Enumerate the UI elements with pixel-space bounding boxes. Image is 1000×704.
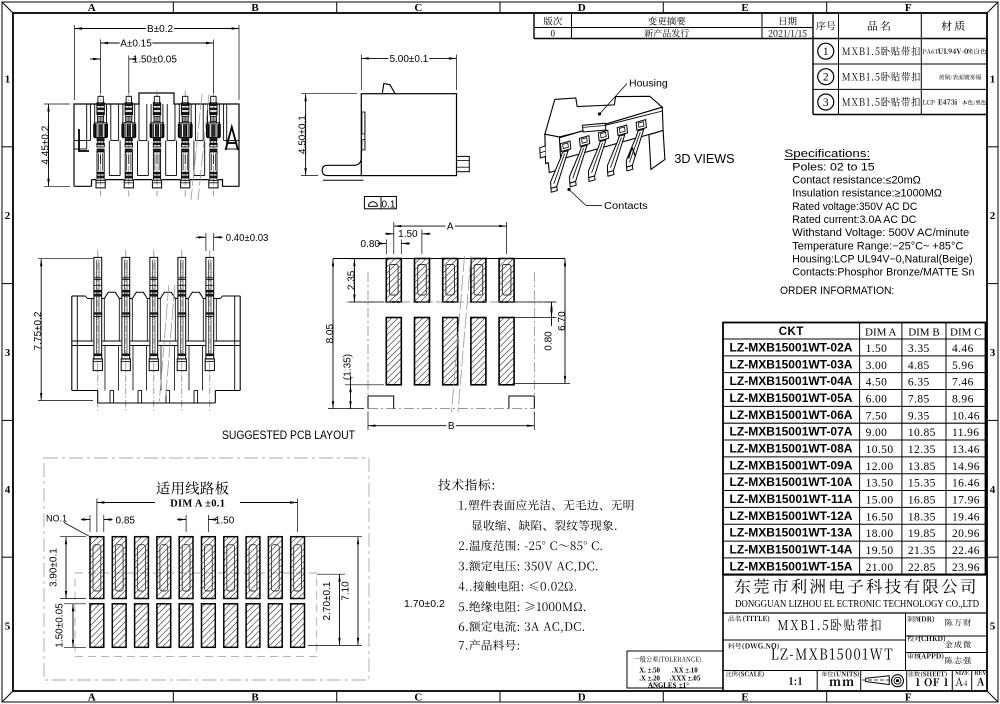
svg-text:DONGGUAN LIZHOU EL ECTRONIC: DONGGUAN LIZHOU EL ECTRONIC TECHNOLOGY C… [735, 599, 979, 610]
svg-text:LZ-MXB15001WT-10A: LZ-MXB15001WT-10A [730, 477, 853, 489]
svg-text:B: B [251, 2, 259, 14]
svg-text:D: D [578, 691, 586, 703]
svg-text:18.35: 18.35 [908, 511, 936, 523]
svg-text:B±0.2: B±0.2 [147, 24, 173, 35]
svg-text:14.96: 14.96 [952, 461, 980, 473]
svg-text:1.50: 1.50 [398, 229, 418, 240]
svg-text:A: A [88, 691, 96, 703]
svg-text:DIM A: DIM A [865, 327, 897, 339]
svg-text:16.85: 16.85 [908, 494, 936, 506]
svg-text:.XXX ±.05: .XXX ±.05 [670, 675, 701, 682]
svg-text:22.46: 22.46 [952, 545, 980, 557]
svg-text:11.96: 11.96 [952, 427, 979, 439]
svg-text:8.05: 8.05 [325, 324, 336, 344]
svg-text:4.46: 4.46 [952, 343, 974, 355]
svg-text:Specifications:: Specifications: [784, 148, 870, 160]
svg-text:F: F [905, 691, 912, 703]
svg-text:3: 3 [990, 347, 996, 359]
svg-text:7.46: 7.46 [952, 377, 974, 389]
svg-text:1.70±0.2: 1.70±0.2 [404, 598, 445, 610]
svg-text:12.35: 12.35 [908, 444, 936, 456]
svg-text:LZ-MXB15001WT-08A: LZ-MXB15001WT-08A [730, 443, 853, 455]
svg-text:A: A [447, 222, 454, 233]
svg-text:4: 4 [5, 484, 11, 496]
svg-text:3: 3 [5, 347, 11, 359]
svg-text:Rated current:3.0A AC DC: Rated current:3.0A AC DC [792, 214, 916, 226]
svg-text:5: 5 [5, 621, 11, 633]
svg-text:LZ-MXB15001WT-13A: LZ-MXB15001WT-13A [730, 528, 853, 540]
svg-text:Insulation resistance:≥1000MΩ: Insulation resistance:≥1000MΩ [792, 188, 942, 200]
svg-text:D: D [578, 2, 586, 14]
svg-text:0.85: 0.85 [116, 516, 136, 527]
svg-text:17.96: 17.96 [952, 494, 980, 506]
svg-text:4.50: 4.50 [866, 377, 888, 389]
svg-text:NO.1: NO.1 [46, 514, 67, 524]
svg-text:0.40±0.03: 0.40±0.03 [226, 233, 269, 244]
svg-text:Temperature Range:−25°C~ +85: Temperature Range:−25°C~ +85°C [792, 240, 963, 252]
svg-text:ORDER INFORMATION:: ORDER INFORMATION: [780, 285, 894, 297]
svg-text:.XX ±.10: .XX ±.10 [672, 667, 698, 674]
svg-text:Contacts: Contacts [604, 200, 648, 212]
svg-text:1.50: 1.50 [866, 343, 888, 355]
svg-text:13.85: 13.85 [908, 461, 936, 473]
svg-text:CKT: CKT [779, 326, 804, 338]
svg-text:Withstand Voltage: 500V AC/: Withstand Voltage: 500V AC/minute [792, 227, 969, 239]
svg-text:13.46: 13.46 [952, 444, 980, 456]
svg-text:LZ-MXB15001WT-14A: LZ-MXB15001WT-14A [730, 545, 853, 557]
svg-text:22.85: 22.85 [908, 562, 936, 574]
svg-text:LZ-MXB15001WT-11A: LZ-MXB15001WT-11A [730, 494, 853, 506]
svg-text:9.00: 9.00 [866, 427, 888, 439]
svg-text:0.80: 0.80 [361, 239, 381, 250]
svg-text:B: B [251, 691, 259, 703]
svg-text:5.96: 5.96 [952, 360, 974, 372]
svg-text:4.50±0.1: 4.50±0.1 [298, 115, 309, 154]
svg-text:C: C [414, 691, 422, 703]
svg-text:0.1: 0.1 [382, 199, 396, 210]
svg-text:SUGGESTED PCB LAYOUT: SUGGESTED PCB LAYOUT [222, 428, 355, 442]
svg-text:2.70±0.1: 2.70±0.1 [322, 581, 333, 620]
svg-text:Housing:LCP UL94V−0,Natural(B: Housing:LCP UL94V−0,Natural(Beige) [792, 253, 972, 265]
svg-text:10.85: 10.85 [908, 427, 936, 439]
svg-text:3.00: 3.00 [866, 360, 888, 372]
svg-text:LZ-MXB15001WT-05A: LZ-MXB15001WT-05A [730, 393, 853, 405]
svg-text:1: 1 [823, 46, 829, 58]
svg-text:0.80: 0.80 [544, 331, 555, 351]
svg-text:20.96: 20.96 [952, 528, 980, 540]
svg-text:7.10: 7.10 [341, 581, 352, 601]
svg-text:A±0.15: A±0.15 [120, 38, 152, 49]
svg-text:7.50: 7.50 [866, 410, 888, 422]
svg-text:15.00: 15.00 [866, 494, 894, 506]
svg-text:Contact resistance:≤20mΩ: Contact resistance:≤20mΩ [792, 175, 921, 187]
svg-text:LZ-MXB15001WT-07A: LZ-MXB15001WT-07A [730, 427, 853, 439]
svg-text:Contacts:Phosphor Bronze/MATT: Contacts:Phosphor Bronze/MATTE Sn [792, 267, 974, 279]
svg-text:LZ-MXB15001WT-04A: LZ-MXB15001WT-04A [730, 376, 853, 388]
svg-text:1: 1 [5, 73, 11, 85]
svg-text:8.96: 8.96 [952, 393, 974, 405]
svg-text:LZ-MXB15001WT-15A: LZ-MXB15001WT-15A [730, 561, 853, 573]
svg-text:23.96: 23.96 [952, 562, 980, 574]
svg-text:6.35: 6.35 [908, 377, 930, 389]
svg-text:4.85: 4.85 [908, 360, 930, 372]
svg-text:13.50: 13.50 [866, 478, 894, 490]
svg-text:19.50: 19.50 [866, 545, 894, 557]
svg-text:16.50: 16.50 [866, 511, 894, 523]
svg-text:LZ-MXB15001WT-02A: LZ-MXB15001WT-02A [730, 342, 853, 354]
svg-text:DIM C: DIM C [950, 327, 981, 339]
svg-text:1.50: 1.50 [215, 516, 235, 527]
svg-text:DIM B: DIM B [908, 327, 939, 339]
svg-text:Housing: Housing [629, 78, 668, 90]
svg-text:6.70: 6.70 [557, 311, 568, 331]
svg-text:1.50±0.05: 1.50±0.05 [55, 603, 66, 648]
svg-text:3D VIEWS: 3D VIEWS [674, 152, 734, 166]
svg-text:X. ±.50: X. ±.50 [639, 667, 660, 674]
svg-text:3.35: 3.35 [908, 343, 930, 355]
svg-text:7.75±0.2: 7.75±0.2 [33, 311, 44, 350]
svg-text:19.85: 19.85 [908, 528, 936, 540]
svg-text:E: E [741, 691, 748, 703]
svg-text:C: C [414, 2, 422, 14]
svg-text:2.35: 2.35 [346, 270, 357, 290]
svg-text:B: B [448, 421, 455, 432]
svg-text:10.46: 10.46 [952, 410, 980, 422]
svg-text:1.50±0.05: 1.50±0.05 [133, 54, 178, 65]
svg-text:19.46: 19.46 [952, 511, 980, 523]
svg-text:9.35: 9.35 [908, 410, 930, 422]
svg-text:E: E [741, 2, 748, 14]
svg-text:2: 2 [5, 210, 11, 222]
svg-text:7.85: 7.85 [908, 393, 930, 405]
svg-text:21.00: 21.00 [866, 562, 894, 574]
svg-text:21.35: 21.35 [908, 545, 936, 557]
svg-text:18.00: 18.00 [866, 528, 894, 540]
svg-text:LZ-MXB15001WT-06A: LZ-MXB15001WT-06A [730, 410, 853, 422]
svg-text:4: 4 [990, 484, 996, 496]
svg-text:5: 5 [990, 621, 996, 633]
svg-text:A: A [88, 2, 96, 14]
svg-text:5.00±0.1: 5.00±0.1 [389, 54, 428, 65]
svg-text:Rated voltage:350V AC DC: Rated voltage:350V AC DC [792, 201, 917, 213]
svg-text:10.50: 10.50 [866, 444, 894, 456]
svg-text:.X ±.20: .X ±.20 [639, 675, 660, 682]
svg-text:3.90±0.1: 3.90±0.1 [49, 548, 60, 587]
svg-text:±1°: ±1° [679, 682, 689, 689]
svg-text:ANGLES: ANGLES [648, 682, 677, 689]
svg-text:0: 0 [551, 29, 556, 39]
svg-text:16.46: 16.46 [952, 478, 980, 490]
svg-text:Poles: 02 to 15: Poles: 02 to 15 [792, 161, 874, 173]
svg-text:(1.35): (1.35) [343, 354, 354, 380]
svg-text:6.00: 6.00 [866, 393, 888, 405]
svg-text:LZ-MXB15001WT-12A: LZ-MXB15001WT-12A [730, 511, 853, 523]
svg-text:LZ-MXB15001WT-09A: LZ-MXB15001WT-09A [730, 460, 853, 472]
svg-text:15.35: 15.35 [908, 478, 936, 490]
svg-text:3: 3 [823, 97, 829, 109]
svg-text:2: 2 [823, 72, 829, 84]
svg-text:12.00: 12.00 [866, 461, 894, 473]
svg-text:DIM A ±0.1: DIM A ±0.1 [170, 499, 225, 510]
svg-text:LZ-MXB15001WT-03A: LZ-MXB15001WT-03A [730, 359, 853, 371]
svg-text:2: 2 [990, 210, 996, 222]
svg-text:1: 1 [990, 73, 996, 85]
svg-text:F: F [905, 2, 912, 14]
svg-text:4.45±0.2: 4.45±0.2 [41, 125, 52, 164]
